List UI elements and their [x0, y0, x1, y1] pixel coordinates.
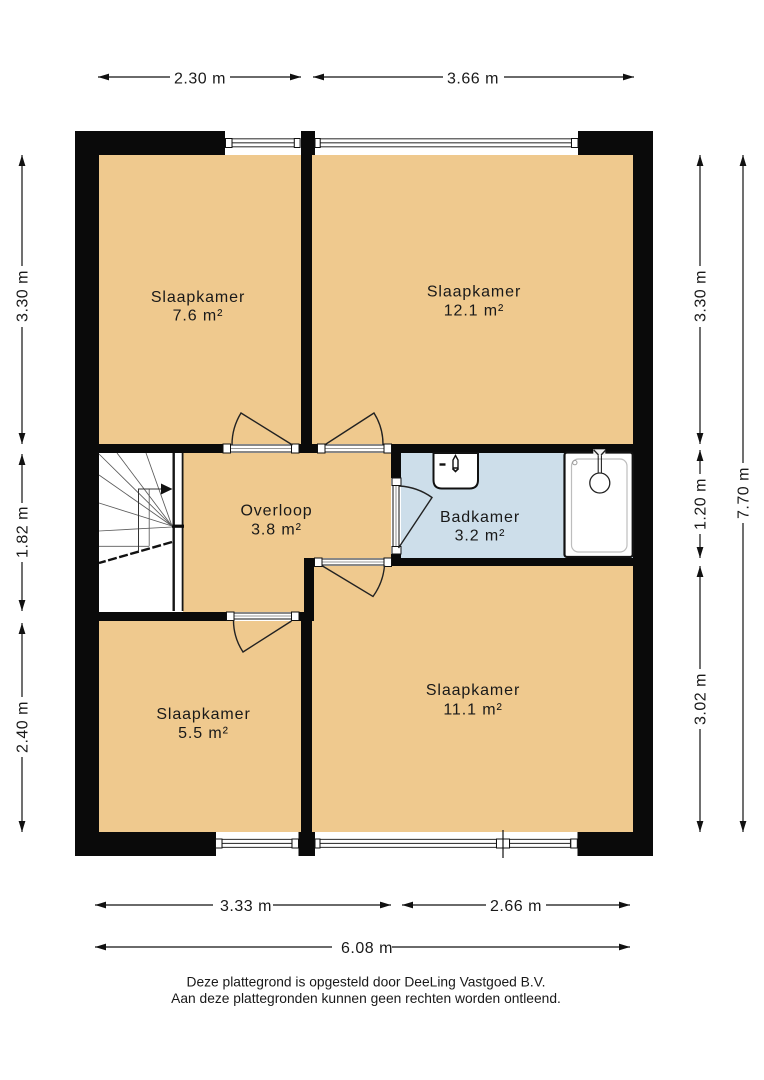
svg-text:12.1 m²: 12.1 m²	[444, 303, 505, 320]
svg-text:7.70 m: 7.70 m	[736, 467, 753, 519]
svg-text:Slaapkamer: Slaapkamer	[426, 682, 520, 699]
svg-text:Slaapkamer: Slaapkamer	[427, 284, 521, 301]
svg-text:5.5 m²: 5.5 m²	[178, 725, 229, 742]
svg-text:Slaapkamer: Slaapkamer	[151, 289, 245, 306]
svg-text:1.20 m: 1.20 m	[693, 478, 710, 530]
svg-text:Slaapkamer: Slaapkamer	[156, 706, 250, 723]
svg-text:7.6 m²: 7.6 m²	[173, 308, 224, 325]
svg-text:3.33 m: 3.33 m	[220, 898, 272, 915]
svg-text:3.66 m: 3.66 m	[447, 70, 499, 87]
svg-text:Badkamer: Badkamer	[440, 509, 520, 526]
svg-text:2.66 m: 2.66 m	[490, 898, 542, 915]
svg-text:3.8 m²: 3.8 m²	[251, 522, 302, 539]
svg-text:Overloop: Overloop	[240, 503, 312, 520]
svg-text:3.02 m: 3.02 m	[693, 673, 710, 725]
svg-text:6.08 m: 6.08 m	[341, 940, 393, 957]
svg-text:Deze plattegrond is opgesteld: Deze plattegrond is opgesteld door DeeLi…	[187, 975, 546, 990]
svg-text:2.40 m: 2.40 m	[15, 701, 32, 753]
svg-text:3.30 m: 3.30 m	[693, 270, 710, 322]
svg-text:1.82 m: 1.82 m	[15, 506, 32, 558]
svg-text:3.30 m: 3.30 m	[15, 270, 32, 322]
svg-text:2.30 m: 2.30 m	[174, 70, 226, 87]
svg-text:Aan deze plattegronden kunnen: Aan deze plattegronden kunnen geen recht…	[171, 991, 561, 1006]
svg-text:3.2 m²: 3.2 m²	[455, 527, 506, 544]
svg-text:11.1 m²: 11.1 m²	[443, 702, 502, 719]
